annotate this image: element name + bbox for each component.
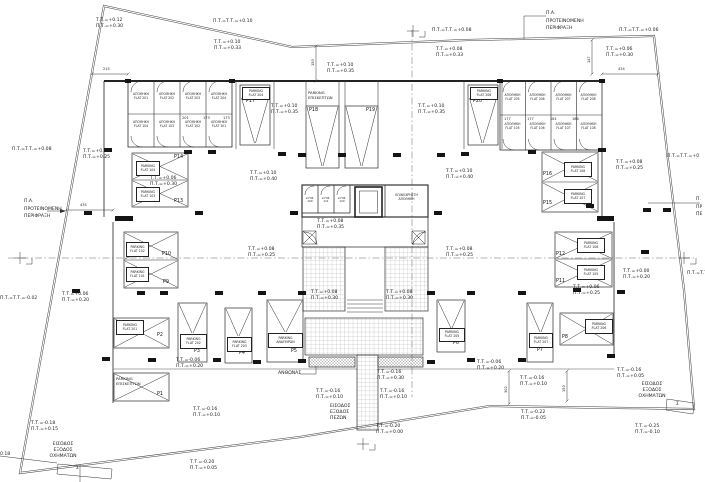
level-annotation: Π.Τ.=Τ.Τ.=+0.10 [213,19,253,25]
vehicle-entrance-label-left: ΕΙΣΟΔΟΣ ΕΞΟΔΟΣ ΟΧΗΜΑΤΩΝ [36,442,90,460]
stall-id-p3: P3 [194,349,200,354]
storage-block-left [128,81,232,147]
storage-unit-label: ΑΠΟΘΗΚΗ FLAT 201 [128,93,154,101]
clipped-annotation: Π.Τ.=Τ.Τ [687,271,705,277]
level-annotation: Τ.Τ.=+0.08 Π.Τ.=+0.25 [83,149,110,161]
dimension-text: 181 [550,117,557,121]
level-annotation: Τ.Τ.=+0.10 Π.Τ.=+0.40 [250,171,277,183]
stall-id-p5: P5 [291,349,297,354]
fence-label-left: Π.Α. ΠΡΟΤΕΙΝΟΜΕΝΗ ΠΕΡΙΦΡΑΞΗ [24,198,62,221]
stall-label-p20: PARKING FLAT 208 [470,87,498,100]
stall-id-p12: P12 [556,252,565,257]
dimension-text: 177 [504,117,511,121]
level-annotation: Τ.Τ.=+0.00 Π.Τ.=+0.20 [623,269,650,281]
stall-label-p13: PARKING FLAT 103 [136,187,160,202]
dimension-text: 435 [80,203,87,207]
level-annotation: Τ.Τ.=+0.10 Π.Τ.=+0.33 [214,40,241,52]
level-annotation: Τ.Τ.=+0.10 Π.Τ.=+0.35 [271,104,298,116]
stall-label-p3: PARKING FLAT 202 [180,334,207,349]
dimension-text: 150 [562,385,566,392]
storage-unit-label: ΑΠΟΘΗΚΗ FLAT 105 [500,123,525,131]
level-annotation: Τ.Τ.=-0.16 Π.Τ.=+0.05 [617,368,644,380]
stall-id-p14: P14 [174,155,183,160]
level-annotation: Π.Τ.=Τ.Τ.=+0.06 [619,28,659,34]
level-annotation: Τ.Τ.=+0.10 Π.Τ.=+0.40 [446,169,473,181]
level-annotation: Τ.Τ.=-0.06 Π.Τ.=+0.20 [176,358,203,370]
stair-mark: Σ [676,402,679,408]
dimension-text: 188 [572,117,579,121]
stall-label-p16: PARKING FLAT 108 [564,162,592,177]
dimension-text: 173 [223,116,230,120]
stall-label-p7: PARKING FLAT 207 [529,333,553,348]
level-annotation: Τ.Τ.=-0.16 Π.Τ.=+0.10 [193,407,220,419]
storage-block-right [500,81,602,150]
level-annotation: Τ.Τ.=+0.10 Π.Τ.=+0.35 [418,104,445,116]
clipped-annotation: 0.18 [0,452,10,458]
storage-unit-label: ΑΠΟΘΗΚΗ FLAT 208 [576,94,601,102]
stall-id-p18: P18 [309,108,318,113]
stall-id-p8: P8 [562,335,568,340]
level-annotation: Τ.Τ.=-0.18 Π.Τ.=+0.15 [31,421,58,433]
level-annotation: Τ.Τ.=+0.06 Π.Τ.=+0.20 [62,292,89,304]
stall-id-p7: P7 [537,348,543,353]
stall-label-p15: PARKING FLAT 107 [564,189,592,204]
stall-id-p13: P13 [174,199,183,204]
stall-id-p1: P1 [157,392,163,397]
level-annotation: Τ.Τ.=+0.08 Π.Τ.=+0.25 [446,247,473,259]
storage-unit-label: ΑΠΟΘΗΚΗ FLAT 106 [525,123,550,131]
level-annotation: Τ.Τ.=+0.08 Π.Τ.=+0.30 [311,290,338,302]
stair-mark: Σ [76,466,79,472]
storage-unit-label: ΑΠΟΘΗΚΗ FLAT 206 [525,94,550,102]
storage-unit-label: ΑΠΟΘΗΚΗ FLAT 104 [128,121,154,129]
stall-label-p10: PARKING FLAT 102 [126,242,149,257]
core-room-label: Α.Η.Β. 111 [318,197,334,204]
level-annotation: Τ.Τ.=+0.06 Π.Τ.=+0.30 [606,47,633,59]
level-annotation: Τ.Τ.=-0.20 Π.Τ.=+0.00 [376,424,403,436]
dimension-text: 215 [103,67,110,71]
level-annotation: Τ.Τ.=-0.22 Π.Τ.=-0.05 [521,410,546,422]
level-annotation: Τ.Τ.=-0.25 Π.Τ.=-0.10 [635,424,660,436]
level-annotation: Τ.Τ.=-0.16 Π.Τ.=+0.10 [316,389,343,401]
storage-unit-label: ΑΠΟΘΗΚΗ FLAT 108 [576,123,601,131]
visitor-parking-label: PARKING ΕΠΙΣΚΕΠΤΩΝ [308,91,333,100]
dimension-text: 177 [527,117,534,121]
dimension-text: 147 [587,56,591,63]
stall-id-p16: P16 [543,172,552,177]
floor-plan-drawing: Τ.Τ.=+0.12 Π.Τ.=+0.30 Π.Τ.=Τ.Τ.=+0.10 Τ.… [0,0,705,482]
stall-label-p14: PARKING FLAT 104 [136,161,160,176]
storage-unit-label: ΑΠΟΘΗΚΗ FLAT 107 [551,123,576,131]
stall-label-p12: PARKING FLAT 106 [577,238,605,253]
storage-unit-label: ΑΠΟΘΗΚΗ FLAT 203 [180,93,206,101]
level-annotation: Τ.Τ.=-0.16 Π.Τ.=+0.10 [380,389,407,401]
level-annotation: Π.Τ.=Τ.Τ.=-0.02 [0,296,37,302]
communal-storage-label: ΚΟΙΝΟΧΡΗΣΤΗ ΑΠΟΘΗΚΗ [386,194,427,202]
storage-unit-label: ΑΠΟΘΗΚΗ FLAT 102 [180,121,206,129]
stall-id-p2: P2 [157,333,163,338]
storage-unit-label: ΑΠΟΘΗΚΗ FLAT 101 [206,121,232,129]
level-annotation: Τ.Τ.=-0.06 Π.Τ.=+0.20 [477,360,504,372]
stall-label-p17: PARKING FLAT 204 [242,87,270,100]
visitor-parking-label: PARKING ΕΠΙΣΚΕΠΤΩΝ [116,377,141,386]
level-annotation: Τ.Τ.=+0.10 Π.Τ.=+0.35 [327,63,354,75]
stall-id-p11: P11 [556,279,565,284]
stall-id-p15: P15 [543,201,552,206]
stall-label-p6: PARKING FLAT 205 [439,328,465,342]
level-annotation: Τ.Τ.=+0.08 Π.Τ.=+0.25 [616,160,643,172]
vehicle-entrance-label-right: ΕΙΣΟΔΟΣ ΕΞΟΔΟΣ ΟΧΗΜΑΤΩΝ [628,382,676,400]
stall-id-p10: P10 [162,252,171,257]
level-annotation: Τ.Τ.=+0.08 Π.Τ.=+0.25 [248,247,275,259]
garden-label: ΑΝΘΩΝΑΣ [278,371,301,377]
level-annotation: Τ.Τ.=+0.06 Π.Τ.=+0.25 [573,285,600,297]
fence-label-top-right: Π.Α. ΠΡΟΤΕΙΝΟΜΕΝΗ ΠΕΡΙΦΡΑΞΗ [546,10,584,33]
level-annotation: Τ.Τ.=-0.16 Π.Τ.=+0.30 [377,370,404,382]
dimension-text: 173 [203,116,210,120]
storage-unit-label: ΑΠΟΘΗΚΗ FLAT 205 [500,94,525,102]
level-annotation: Τ.Τ.=-0.20 Π.Τ.=+0.05 [190,460,217,472]
dimension-text: 434 [618,67,625,71]
dimension-text: 201 [182,116,189,120]
level-annotation: Τ.Τ.=+0.12 Π.Τ.=+0.30 [96,18,123,30]
stall-label-p5: PARKING ΑΝΑΠΗΡΩΝ [268,333,303,348]
dimension-text: 150 [311,59,315,66]
level-annotation: Π.Τ.=Τ.Τ.=+0.08 [432,28,472,34]
level-annotation: Τ.Τ.=+0.08 Π.Τ.=+0.33 [436,47,463,59]
clipped-annotation: Π.Τ.=Τ.Τ.=+0 [667,154,699,160]
core-room-label: Α.Η.Β. 120 [334,197,350,204]
clipped-fence-label-right: Π. ΠΡ ΠΕ [696,196,702,219]
stall-label-p4: PARKING FLAT 203 [227,337,252,352]
level-annotation: Τ.Τ.=+0.08 Π.Τ.=+0.30 [386,290,413,302]
courtyard [303,247,428,430]
stall-label-p2: PARKING FLAT 201 [116,320,144,335]
storage-unit-label: ΑΠΟΘΗΚΗ FLAT 103 [154,121,180,129]
stall-label-p8: PARKING FLAT 206 [585,319,613,334]
stall-label-p11: PARKING FLAT 105 [577,265,605,280]
level-annotation: Τ.Τ.=-0.16 Π.Τ.=+0.10 [520,376,547,388]
level-annotation: Τ.Τ.=+0.08 Π.Τ.=+0.35 [317,219,344,231]
dimension-text: 302 [504,386,508,393]
level-annotation: Π.Τ.=Τ.Τ.=+0.08 [12,147,52,153]
storage-unit-label: ΑΠΟΘΗΚΗ FLAT 202 [154,93,180,101]
pedestrian-entrance-label: ΕΙΣΟΔΟΣ ΕΞΟΔΟΣ ΠΕΖΩΝ [330,404,350,422]
stall-label-p9: PARKING FLAT 101 [126,267,149,282]
storage-unit-label: ΑΠΟΘΗΚΗ FLAT 204 [206,93,232,101]
stall-id-p9: P9 [163,280,169,285]
storage-unit-label: ΑΠΟΘΗΚΗ FLAT 207 [551,94,576,102]
core-room-label: Α.Η.Β. 100 [302,197,318,204]
stall-id-p19: P19 [366,108,375,113]
